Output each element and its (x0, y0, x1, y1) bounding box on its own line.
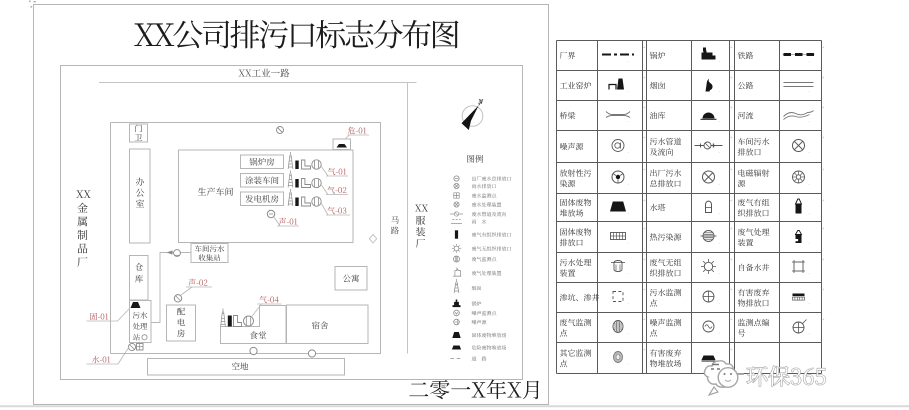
svg-text:+: + (730, 135, 733, 141)
svg-text:环保365: 环保365 (746, 361, 827, 392)
svg-text:河流: 河流 (738, 111, 754, 122)
svg-text:有害废弃: 有害废弃 (650, 348, 682, 359)
svg-text:.: . (628, 329, 629, 336)
svg-text:装置: 装置 (560, 268, 576, 279)
svg-text:出厂废水总排放口: 出厂废水总排放口 (472, 176, 512, 183)
svg-text:点: 点 (650, 298, 658, 309)
svg-text:热污染源: 热污染源 (650, 232, 682, 243)
svg-text:+: + (730, 105, 733, 111)
svg-text:总排放口: 总排放口 (650, 179, 682, 190)
svg-text:.: . (809, 180, 810, 187)
svg-text:危-01: 危-01 (348, 126, 367, 137)
svg-text:有害废弃: 有害废弃 (738, 288, 770, 299)
svg-text:织排放口: 织排放口 (738, 208, 770, 219)
svg-text:点: 点 (560, 359, 568, 370)
svg-text:烟囱: 烟囱 (472, 285, 482, 292)
svg-text:.: . (809, 117, 810, 124)
svg-text:路: 路 (391, 224, 400, 236)
svg-text:+: + (730, 347, 733, 353)
svg-text:噪声源: 噪声源 (560, 142, 584, 153)
svg-text:.: . (809, 239, 810, 246)
svg-text:废气处理: 废气处理 (738, 227, 770, 238)
svg-text:+: + (730, 198, 733, 204)
svg-text:废气处理装置: 废气处理装置 (472, 270, 502, 277)
svg-text:排放口: 排放口 (738, 147, 762, 158)
svg-text:XX公司排污口标志分布图: XX公司排污口标志分布图 (134, 10, 459, 55)
svg-text:+: + (822, 287, 825, 293)
svg-text:废气有组: 废气有组 (738, 198, 770, 209)
svg-text:.: . (719, 180, 720, 187)
svg-text:收集站: 收集站 (198, 253, 221, 264)
svg-text:.: . (628, 239, 629, 246)
svg-text:气-04: 气-04 (259, 295, 279, 306)
svg-text:气-02: 气-02 (327, 185, 347, 196)
svg-text:.: . (719, 117, 720, 124)
svg-text:铁路: 铁路 (738, 51, 754, 62)
svg-text:+: + (822, 198, 825, 204)
svg-text:固-01: 固-01 (90, 312, 109, 323)
svg-text:+: + (822, 167, 825, 173)
svg-text:+: + (730, 226, 733, 232)
svg-text:处理: 处理 (133, 321, 148, 332)
svg-text:+: + (643, 45, 646, 51)
svg-text:.: . (628, 87, 629, 94)
svg-text:涂装车间: 涂装车间 (245, 175, 279, 187)
svg-text:放射性污: 放射性污 (560, 168, 592, 179)
svg-text:污水处理: 污水处理 (560, 258, 592, 269)
svg-text:站: 站 (133, 332, 141, 343)
svg-text:声-02: 声-02 (188, 278, 208, 289)
svg-text:噪声监测点: 噪声监测点 (472, 310, 497, 317)
svg-text:厂界: 厂界 (560, 51, 576, 62)
svg-text:+: + (822, 317, 825, 323)
svg-text:气-03: 气-03 (327, 206, 347, 217)
svg-text:+: + (643, 287, 646, 293)
svg-text:宿舍: 宿舍 (311, 320, 329, 332)
svg-text:发电机房: 发电机房 (245, 193, 280, 205)
svg-text:监测点编: 监测点编 (738, 318, 770, 329)
svg-text:库: 库 (135, 273, 144, 285)
svg-text:+: + (643, 198, 646, 204)
svg-text:装置: 装置 (738, 238, 754, 249)
svg-text:车间污水: 车间污水 (738, 137, 770, 148)
svg-text:点: 点 (560, 328, 568, 339)
svg-text:.: . (628, 57, 629, 64)
svg-text:二零一X年X月: 二零一X年X月 (408, 375, 542, 405)
svg-text:厂: 厂 (77, 254, 88, 270)
svg-text:+: + (822, 105, 825, 111)
svg-text:声-01: 声-01 (279, 217, 298, 228)
svg-text:污水监测: 污水监测 (650, 288, 682, 299)
svg-text:固体废物: 固体废物 (560, 227, 592, 238)
svg-text:公路: 公路 (738, 81, 754, 92)
svg-text:锅炉: 锅炉 (650, 51, 666, 62)
svg-text:自备水井: 自备水井 (738, 263, 770, 274)
svg-text:公寓: 公寓 (342, 273, 360, 285)
svg-text:堆放场: 堆放场 (560, 208, 584, 219)
svg-text:+: + (643, 347, 646, 353)
svg-text:污水: 污水 (133, 310, 148, 321)
svg-text:废气有组织排放口: 废气有组织排放口 (472, 232, 512, 239)
svg-text:+: + (822, 135, 825, 141)
svg-text:水-01: 水-01 (92, 355, 111, 366)
svg-text:雨 水: 雨 水 (472, 219, 487, 226)
svg-text:房: 房 (177, 327, 186, 339)
svg-text:废水监测点: 废水监测点 (472, 193, 497, 200)
svg-text:N: N (477, 97, 484, 106)
svg-text:+: + (643, 257, 646, 263)
svg-text:+: + (730, 45, 733, 51)
svg-text:.: . (628, 180, 629, 187)
svg-text:噪声监测: 噪声监测 (650, 318, 682, 329)
svg-text:排放口: 排放口 (560, 238, 584, 249)
svg-text:.: . (719, 269, 720, 276)
svg-text:.: . (719, 87, 720, 94)
svg-text:桥梁: 桥梁 (560, 111, 576, 122)
svg-text:+: + (730, 317, 733, 323)
svg-text:+: + (643, 317, 646, 323)
svg-text:及流向: 及流向 (650, 147, 674, 158)
svg-text:空地: 空地 (231, 361, 249, 373)
svg-text:废气监测: 废气监测 (560, 318, 592, 329)
svg-text:工业窑炉: 工业窑炉 (560, 81, 592, 92)
svg-text:气-01: 气-01 (328, 167, 347, 178)
svg-text:+: + (730, 167, 733, 173)
svg-text:+: + (822, 75, 825, 81)
svg-text:+: + (822, 257, 825, 263)
svg-text:水塔: 水塔 (650, 203, 666, 214)
svg-text:+: + (730, 75, 733, 81)
svg-text:+: + (643, 226, 646, 232)
svg-text:.: . (809, 329, 810, 336)
svg-text:其它监测: 其它监测 (560, 348, 592, 359)
svg-text:号: 号 (738, 328, 746, 339)
svg-text:废气无组织排放口: 废气无组织排放口 (472, 246, 512, 253)
svg-text:.: . (628, 360, 629, 367)
svg-text:油库: 油库 (650, 111, 666, 122)
svg-text:+: + (643, 135, 646, 141)
svg-text:.: . (719, 57, 720, 64)
svg-text:.: . (719, 329, 720, 336)
svg-text:+: + (822, 226, 825, 232)
svg-text:.: . (809, 87, 810, 94)
svg-text:.: . (628, 299, 629, 306)
svg-text:+: + (643, 105, 646, 111)
svg-text:.: . (809, 148, 810, 155)
svg-text:点: 点 (650, 328, 658, 339)
svg-text:固体废物堆放场: 固体废物堆放场 (472, 332, 507, 339)
svg-text:.: . (719, 239, 720, 246)
svg-text:雨水排放口: 雨水排放口 (472, 183, 497, 190)
svg-text:.: . (809, 209, 810, 216)
svg-text:.: . (809, 269, 810, 276)
svg-text:物排放口: 物排放口 (738, 298, 770, 309)
svg-text:仓: 仓 (135, 261, 144, 273)
svg-text:危险废物堆放场: 危险废物堆放场 (472, 345, 507, 352)
svg-text:XX工业一路: XX工业一路 (238, 66, 290, 80)
svg-text:废水管道及流向: 废水管道及流向 (472, 211, 507, 218)
svg-text:源: 源 (738, 179, 746, 190)
svg-text:+: + (822, 45, 825, 51)
svg-text:+: + (643, 167, 646, 173)
svg-text:厂: 厂 (416, 235, 426, 250)
svg-text:锅炉: 锅炉 (472, 301, 482, 308)
svg-text:废气无组: 废气无组 (650, 258, 682, 269)
svg-text:织排放口: 织排放口 (650, 268, 682, 279)
svg-text:生产车间: 生产车间 (197, 185, 233, 198)
svg-text:道 路: 道 路 (472, 356, 487, 363)
svg-text:图例: 图例 (466, 153, 484, 165)
svg-text:.: . (628, 148, 629, 155)
svg-text:渗坑、渗井: 渗坑、渗井 (560, 293, 600, 304)
svg-text:.: . (809, 57, 810, 64)
svg-text:物堆放场: 物堆放场 (650, 359, 682, 370)
svg-text:食堂: 食堂 (249, 330, 267, 342)
svg-text:.: . (719, 148, 720, 155)
svg-text:+: + (643, 75, 646, 81)
svg-text:噪声源: 噪声源 (472, 319, 487, 326)
svg-text:电磁辐射: 电磁辐射 (738, 168, 770, 179)
svg-text:室: 室 (135, 197, 144, 210)
svg-text:废水处理装置: 废水处理装置 (472, 202, 502, 209)
svg-text:.: . (719, 299, 720, 306)
svg-text:废气监测点: 废气监测点 (472, 256, 497, 263)
svg-text:.: . (719, 209, 720, 216)
svg-text:.: . (628, 117, 629, 124)
svg-text:出厂污水: 出厂污水 (650, 168, 682, 179)
svg-text:.: . (628, 209, 629, 216)
svg-text:卫: 卫 (135, 132, 143, 143)
svg-text:锅炉房: 锅炉房 (249, 156, 275, 168)
svg-text:.: . (809, 299, 810, 306)
svg-text:污水管道: 污水管道 (650, 137, 682, 148)
svg-text:+: + (730, 287, 733, 293)
svg-text:染源: 染源 (560, 179, 576, 190)
svg-text:+: + (730, 257, 733, 263)
svg-text:.: . (628, 269, 629, 276)
svg-text:烟囱: 烟囱 (650, 81, 666, 92)
svg-text:固体废物: 固体废物 (560, 198, 592, 209)
